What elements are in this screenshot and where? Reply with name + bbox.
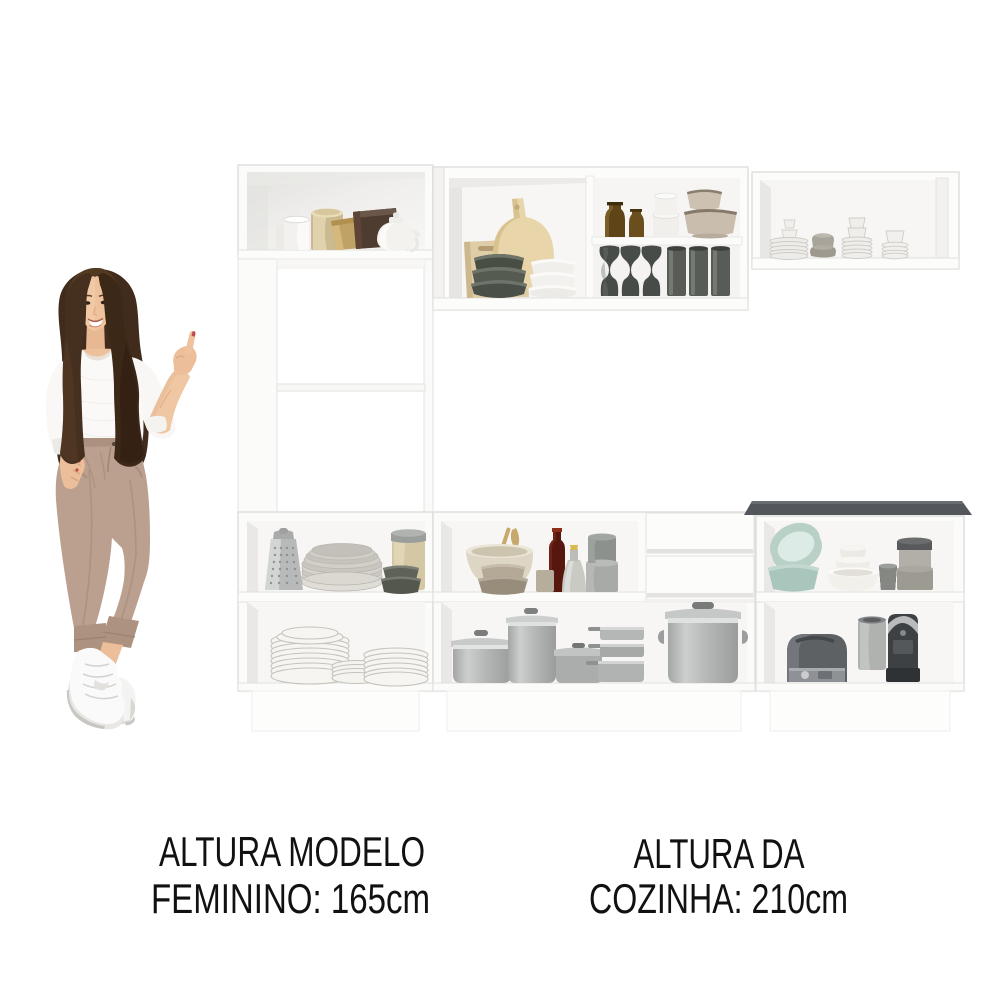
svg-text:COZINHA: 210cm: COZINHA: 210cm (589, 875, 848, 922)
svg-text:FEMININO: 165cm: FEMININO: 165cm (151, 875, 430, 922)
svg-text:ALTURA MODELO: ALTURA MODELO (159, 828, 425, 875)
svg-text:ALTURA DA: ALTURA DA (634, 830, 805, 877)
